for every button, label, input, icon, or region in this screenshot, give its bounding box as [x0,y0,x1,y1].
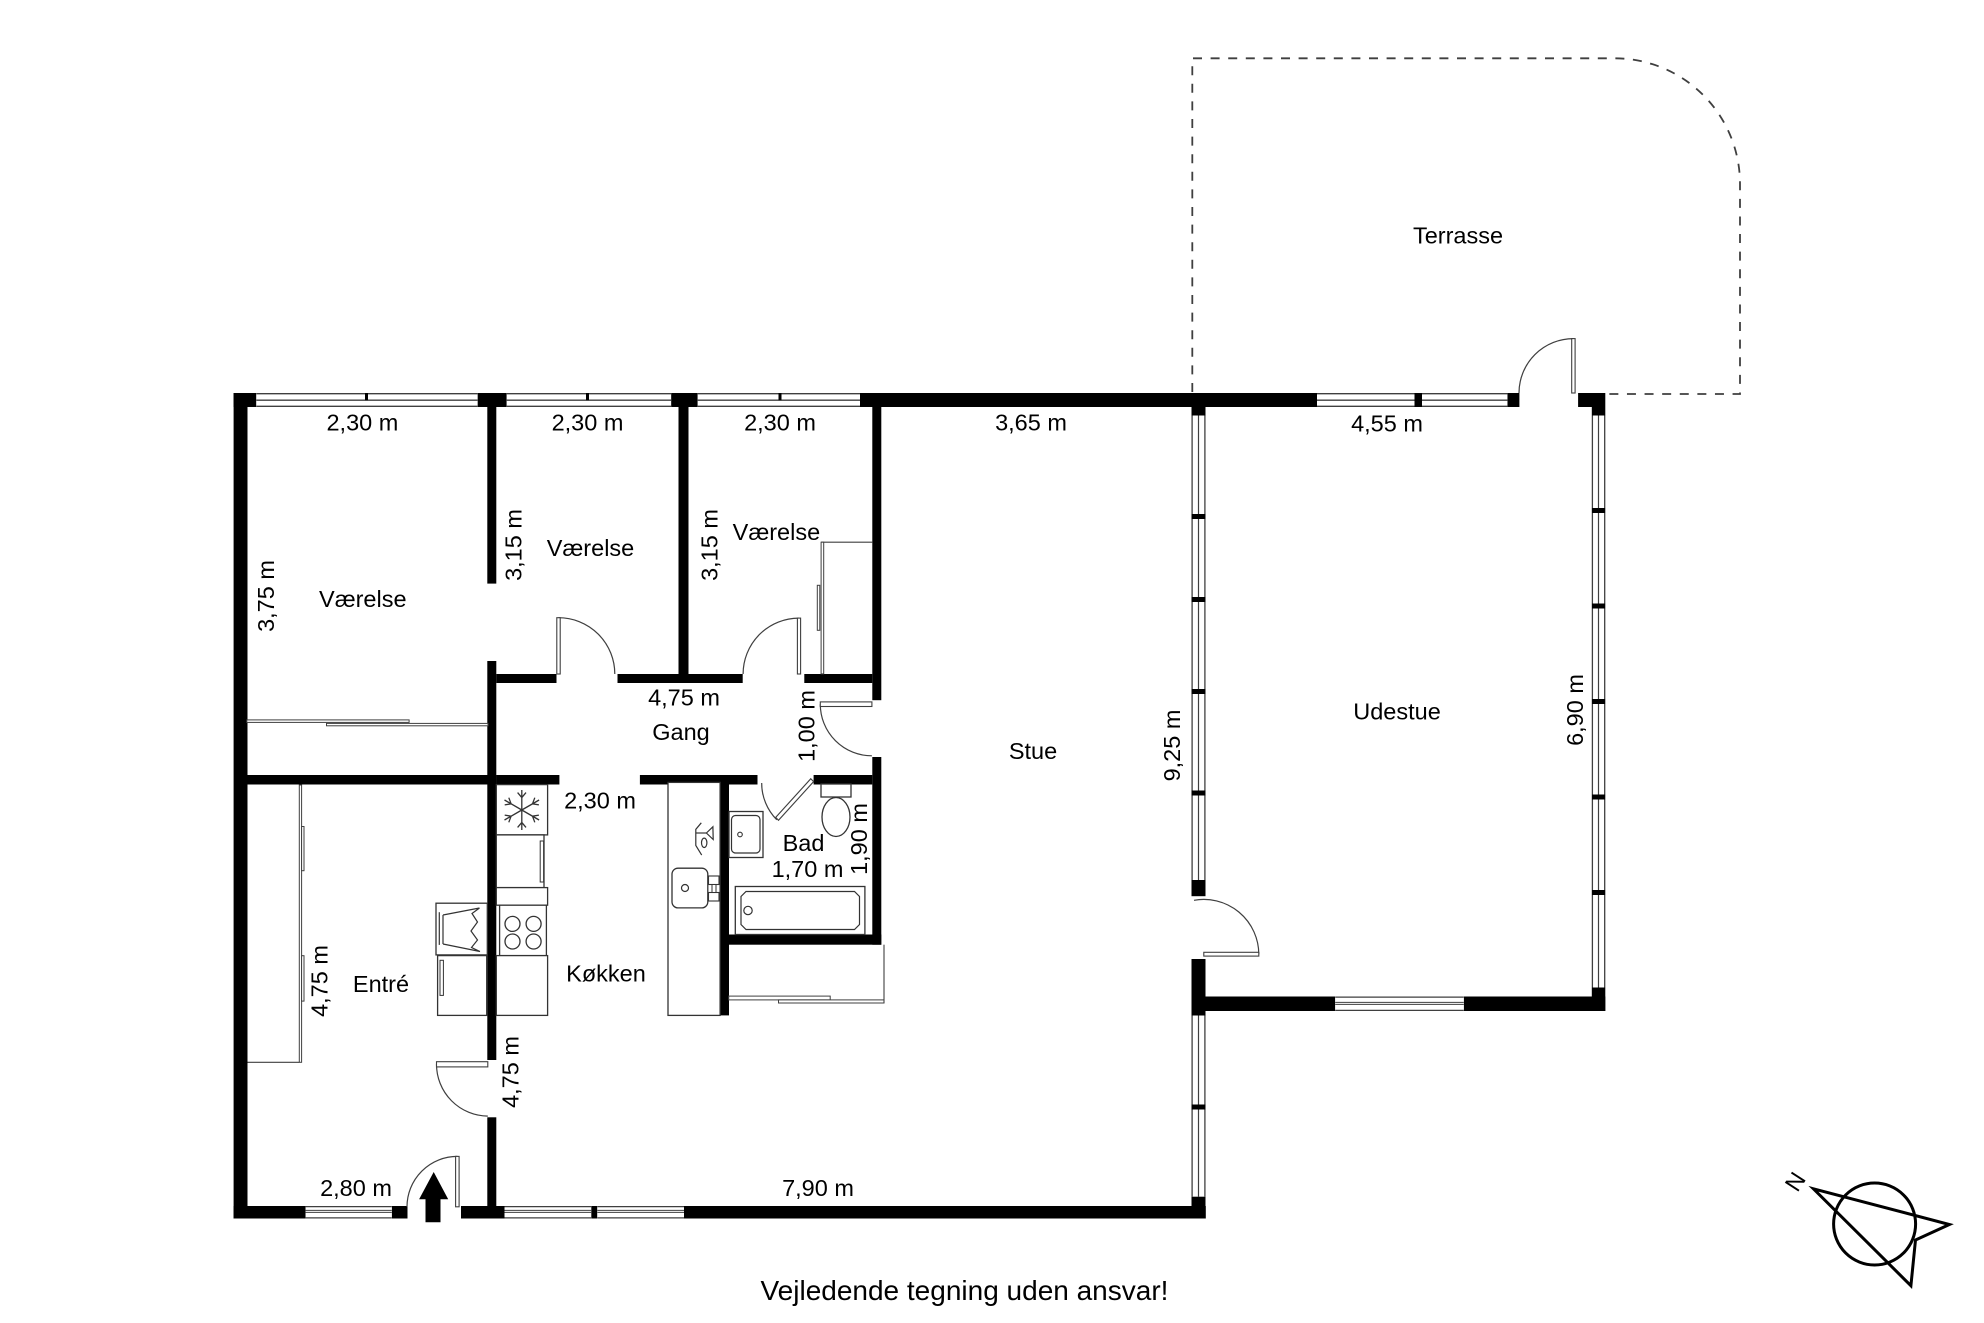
svg-text:4,75 m: 4,75 m [497,1036,523,1108]
svg-text:Værelse: Værelse [733,519,821,545]
svg-text:2,80 m: 2,80 m [320,1175,392,1201]
svg-text:2,30 m: 2,30 m [552,410,624,436]
svg-text:Værelse: Værelse [319,586,407,612]
svg-text:3,15 m: 3,15 m [500,509,526,581]
svg-text:Bad: Bad [783,830,825,856]
svg-text:3,75 m: 3,75 m [253,560,279,632]
svg-text:1,70 m: 1,70 m [772,856,844,882]
svg-text:1,90 m: 1,90 m [846,803,872,875]
svg-text:Stue: Stue [1009,738,1057,764]
svg-text:4,75 m: 4,75 m [306,945,332,1017]
svg-text:3,15 m: 3,15 m [696,509,722,581]
svg-text:Værelse: Værelse [547,535,635,561]
svg-text:6,90 m: 6,90 m [1562,674,1588,746]
svg-text:Entré: Entré [353,971,409,997]
svg-text:2,30 m: 2,30 m [564,787,636,813]
svg-text:1,00 m: 1,00 m [793,690,819,762]
svg-text:3,65 m: 3,65 m [995,409,1067,435]
svg-text:4,55 m: 4,55 m [1351,410,1423,436]
svg-text:Køkken: Køkken [566,960,646,986]
svg-text:7,90 m: 7,90 m [782,1175,854,1201]
svg-text:4,75 m: 4,75 m [648,684,720,710]
svg-text:Gang: Gang [652,719,710,745]
svg-text:Udestue: Udestue [1353,698,1441,724]
svg-text:2,30 m: 2,30 m [326,410,398,436]
svg-text:9,25 m: 9,25 m [1159,710,1185,782]
svg-text:Terrasse: Terrasse [1413,222,1503,248]
svg-text:2,30 m: 2,30 m [744,410,816,436]
svg-text:Vejledende tegning uden ansvar: Vejledende tegning uden ansvar! [761,1275,1169,1306]
